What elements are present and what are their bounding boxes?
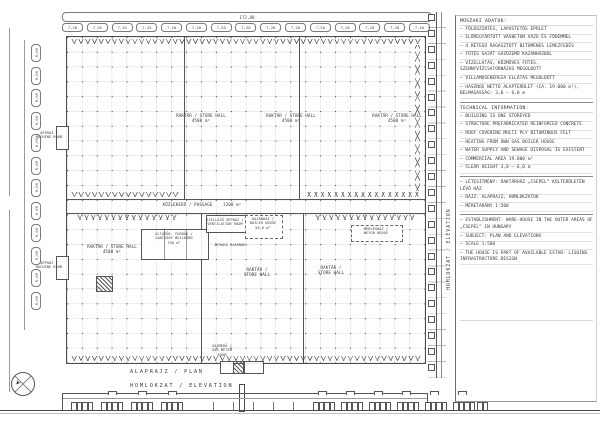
plan-title: ALAPRAJZ / PLAN [130, 369, 204, 375]
room-label-ventilation: SZELLŐZŐ GÉPHÁZ / VENTILATION ROOM [206, 218, 244, 227]
dim-bubble-left-value: 6,00 [34, 296, 39, 305]
note-row: – FŰTÉS SAJÁT GÁZÜZEMŰ KAZÁNHÁZBÓL [460, 52, 593, 61]
side-elevation-door [428, 78, 435, 85]
side-elevation-door [428, 173, 435, 180]
note-row: – CLEAR HEIGHT 3,0 – 6,0 m [460, 165, 593, 174]
note-row: – COMMERCIAL AREA 19.000 m² [460, 156, 593, 165]
dim-bubble-left-value: 6,00 [34, 183, 39, 192]
dim-bubble-top: 7,20 [359, 23, 380, 32]
note-row: – VILLAMOSENERGIA ELLÁTÁS MEGOLDOTT [460, 76, 593, 85]
side-elevation-door [428, 46, 435, 53]
dim-bubble-top: 7,20 [310, 23, 331, 32]
side-elevation-door [428, 109, 435, 116]
side-elevation-door [428, 205, 435, 212]
note-row: – HASZNOS NETTÓ ALAPTERÜLET (CA. 19.000 … [460, 84, 593, 99]
room-label-passage: KÖZLEKEDŐ / PASSAGE 1200 m² [127, 202, 277, 207]
note-row: – WATER SUPPLY AND SEWAGE DISPOSAL IS EX… [460, 148, 593, 157]
side-elevation-door [428, 300, 435, 307]
left-bay-col: 6,006,006,006,006,006,006,006,006,006,00… [31, 44, 41, 334]
roof-vent [108, 391, 117, 395]
door-strip-corridor [77, 215, 177, 220]
overall-dimension: 172,80 [62, 12, 432, 22]
note-row: – HEATING FROM OWN GAS BOILER HOUSE [460, 139, 593, 148]
note-row: – ROOF COVERING MULTI PLY BITUMINOUS FEL… [460, 131, 593, 140]
note-row: – VÍZELLÁTÁS, KÖZMŰVES FŰTÉS, SZENNYVÍZC… [460, 60, 593, 75]
dim-bubble-top: 7,20 [335, 23, 356, 32]
side-elevation-door [428, 157, 435, 164]
parapet-line [63, 398, 427, 399]
room-label-hall-s: RAKTÁR / STORE HALL [235, 267, 279, 277]
note-row: – STRUCTURE PREFABRICATED REINFORCED CON… [460, 122, 593, 131]
note-row: – BUILDING IS ONE STOREYED [460, 113, 593, 122]
note-row: – 4 RÉTEGŰ RAGASZTOTT BITUMENES LEMEZFED… [460, 43, 593, 52]
side-elevation-door [428, 94, 435, 101]
side-elevation-door [428, 221, 435, 228]
roof-vent [374, 391, 383, 395]
stair-hatch [96, 276, 113, 292]
note-row: – FÖLDSZINTES, LAPOSTETŐS ÉPÜLET [460, 26, 593, 35]
dim-bubble-top: 7,20 [211, 23, 232, 32]
side-elevation-door [428, 125, 435, 132]
roof-vent [430, 391, 439, 395]
panel-separator [460, 102, 593, 103]
dim-bubble-left-value: 6,00 [34, 251, 39, 260]
dim-bubble-top: 7,20 [161, 23, 182, 32]
panel-empty-row [460, 265, 593, 321]
dim-bubble-top: 7,20 [409, 23, 430, 32]
panel-separator [460, 176, 593, 177]
room-label-hall-ne: RAKTÁR / STORE HALL 4500 m² [367, 113, 427, 123]
sheet-edge-line [9, 28, 10, 196]
dim-bubble-left-value: 6,00 [34, 228, 39, 237]
room-label-hall-sw: RAKTÁR / STORE HALL 4500 m² [79, 244, 145, 254]
dim-bubble-left-value: 6,00 [34, 48, 39, 57]
dim-bubble-left: 6,00 [31, 112, 41, 130]
ground-line-secondary [0, 413, 600, 414]
dividing-wall [303, 213, 304, 363]
note-row: – SCALE 1:500 [460, 242, 593, 251]
dim-bubble-left: 6,00 [31, 179, 41, 197]
side-elevation-title: HOMLOKZAT / ELEVATION [447, 150, 452, 290]
note-row: – SUBJECT: PLAN AND ELEVATIONS [460, 233, 593, 242]
dim-bubble-left: 6,00 [31, 202, 41, 220]
dim-bubble-left: 6,00 [31, 224, 41, 242]
dim-bubble-left: 6,00 [31, 89, 41, 107]
roof-vent [138, 391, 147, 395]
roof-vent [458, 391, 467, 395]
note-row: – MÉRETARÁNY 1:500 [460, 203, 593, 212]
note-row: – THE HOUSE IS PART OF AVAILABLE ESTAB- … [460, 250, 593, 265]
dim-bubble-left-value: 6,00 [34, 206, 39, 215]
roof-vent [168, 391, 177, 395]
dim-bubble-top: 7,20 [87, 23, 108, 32]
sheet-edge-line [9, 210, 10, 392]
side-elevation-door [428, 14, 435, 21]
dim-bubble-left-value: 6,00 [34, 161, 39, 170]
dim-bubble-top: 7,20 [285, 23, 306, 32]
door-strip-top [71, 39, 421, 44]
dim-bubble-left-value: 6,00 [34, 93, 39, 102]
side-elevation-door [428, 253, 435, 260]
room-label-hall-se: RAKTÁR / STORE HALL [307, 265, 355, 275]
room-label-machine-1: GÉPHÁZ / MACHINE ROOM [34, 131, 64, 140]
dim-bubble-left-value: 6,00 [34, 116, 39, 125]
gas-meter-box [244, 361, 264, 374]
room-label-transfer: ÁTRAKÓ CSARNOK [207, 243, 253, 247]
ground-line [0, 410, 600, 411]
side-elevation-door [428, 268, 435, 275]
dim-bubble-left: 6,00 [31, 44, 41, 62]
room-label-machine-2: GÉPHÁZ / MACHINE ROOM [34, 261, 64, 270]
top-bay-row: 7,207,207,207,207,207,207,207,207,207,20… [62, 23, 430, 31]
side-elevation-door [428, 332, 435, 339]
panel-separator [460, 214, 593, 215]
side-elevation [428, 12, 446, 378]
room-label-hall-n: RAKTÁR / STORE HALL 4500 m² [261, 113, 321, 123]
door-strip-corridor [71, 192, 179, 197]
elevation-title: HOMLOKZAT / ELEVATION [130, 383, 233, 389]
room-label-hall-nw: RAKTÁR / STORE HALL 4500 m² [171, 113, 231, 123]
note-row: – ELŐREGYÁRTOTT VASBETON VÁZÚ ÉS FÖDÉMME… [460, 35, 593, 44]
side-elevation-line [441, 12, 442, 378]
room-label-gas-meter: GÁZMÉRŐ / GAS METER ROOM [200, 344, 244, 357]
side-elevation-door [428, 237, 435, 244]
gas-meter-box-hatched [233, 361, 244, 374]
side-elevation-door [428, 284, 435, 291]
north-arrow-icon: ➤ [11, 372, 35, 396]
dimension-extension-line [24, 40, 25, 330]
dim-bubble-left: 6,00 [31, 67, 41, 85]
room-label-sanitary: ÖLTÖZŐK, FÜRDŐK / SANITARY BUILDING 750 … [137, 232, 211, 245]
floor-plan: RAKTÁR / STORE HALL 4500 m² RAKTÁR / STO… [66, 36, 426, 364]
notes-heading-hu: MŰSZAKI ADATOK: [460, 18, 593, 26]
dim-bubble-top: 7,20 [235, 23, 256, 32]
dim-bubble-left-value: 6,00 [34, 71, 39, 80]
room-label-weigh: MÉRLEGHÁZ / WEIGH HOUSE [351, 227, 401, 236]
corridor-wall [67, 213, 425, 214]
note-row: – RAJZ: ALAPRAJZ, HOMLOKZATOK [460, 195, 593, 204]
notes-panel: MŰSZAKI ADATOK: – FÖLDSZINTES, LAPOSTETŐ… [455, 15, 597, 402]
notes-heading-en: TECHNICAL INFORMATION: [460, 105, 593, 113]
roof-vent [346, 391, 355, 395]
door-strip-corridor [315, 215, 415, 220]
roof-vent [402, 391, 411, 395]
note-row: – ESTABLISHMENT: WARE-HOUSE IN THE OUTER… [460, 218, 593, 233]
dim-bubble-left: 6,00 [31, 292, 41, 310]
dim-bubble-left-value: 6,00 [34, 273, 39, 282]
dim-bubble-top: 7,20 [62, 23, 83, 32]
door-strip-corridor [307, 192, 419, 197]
side-elevation-line [436, 12, 437, 378]
side-elevation-door [428, 141, 435, 148]
drawing-sheet: 172,80 7,207,207,207,207,207,207,207,207… [0, 0, 600, 425]
side-elevation-door [428, 348, 435, 355]
side-elevation-door [428, 316, 435, 323]
dim-bubble-top: 7,20 [112, 23, 133, 32]
side-elevation-door [428, 30, 435, 37]
side-elevation-door [428, 189, 435, 196]
note-row: – LÉTESÍTMÉNY: RAKTÁRHÁZ „CSEPEL” KÜLTER… [460, 180, 593, 195]
front-elevation [62, 393, 428, 411]
side-elevation-door [428, 364, 435, 371]
overall-dimension-value: 172,80 [239, 15, 254, 20]
dim-bubble-top: 7,20 [136, 23, 157, 32]
dim-bubble-left: 6,00 [31, 157, 41, 175]
dim-bubble-top: 7,20 [384, 23, 405, 32]
gas-meter-box [220, 361, 234, 374]
dim-bubble-left: 6,00 [31, 269, 41, 287]
roof-vent [318, 391, 327, 395]
side-elevation-door [428, 62, 435, 69]
dim-bubble-top: 7,20 [260, 23, 281, 32]
room-label-boiler: KAZÁNHÁZ / BOILER HOUSE 90,0 m² [245, 217, 281, 230]
corridor-wall [67, 199, 425, 200]
dim-bubble-top: 7,20 [186, 23, 207, 32]
